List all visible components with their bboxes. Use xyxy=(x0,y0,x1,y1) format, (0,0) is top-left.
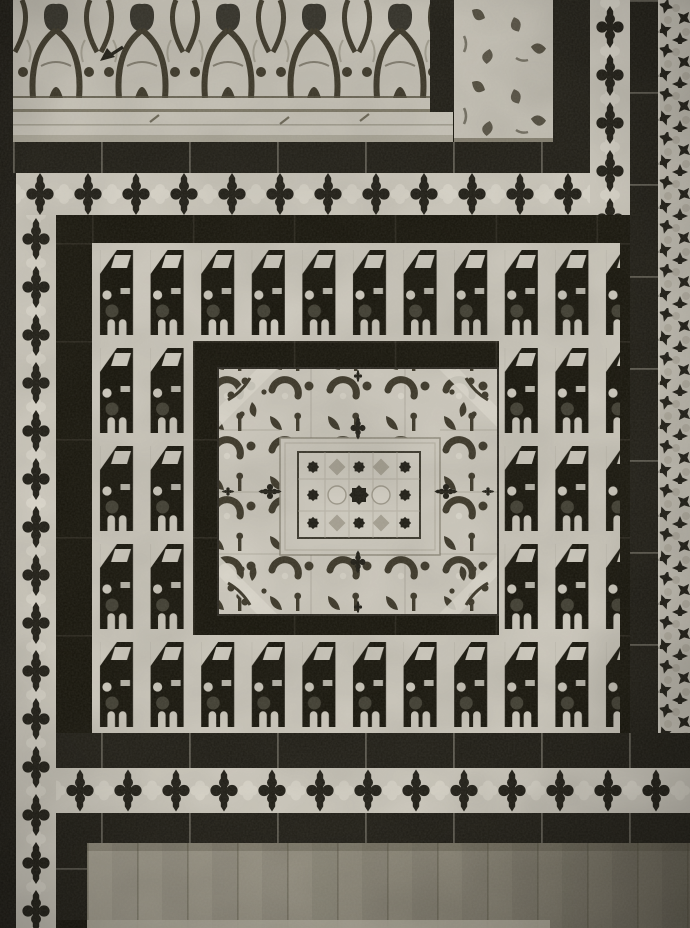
photograph xyxy=(0,0,690,928)
photo-canvas xyxy=(0,0,690,928)
vignette-overlay xyxy=(0,0,690,928)
